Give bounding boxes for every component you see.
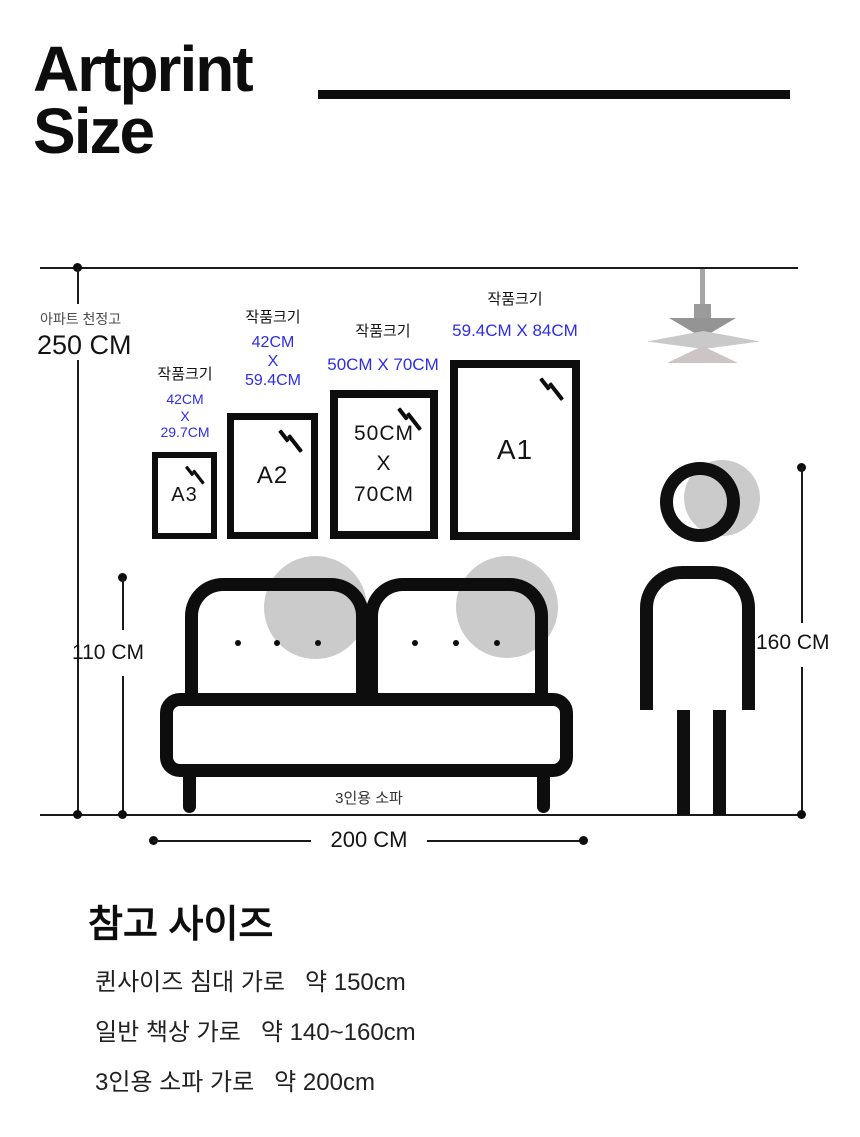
artwork-dimensions: 42CM X 59.4CM xyxy=(222,334,324,391)
frame-a1: A1 xyxy=(450,360,580,540)
sofa-leg xyxy=(537,771,550,813)
glass-glare-icon xyxy=(279,426,305,456)
ceiling-caption: 아파트 천정고 xyxy=(40,309,121,329)
artwork-dimensions: 42CM X 29.7CM xyxy=(140,391,230,441)
frame-caption-50x70: 작품크기 50CM X 70CM xyxy=(318,320,448,375)
dimension-text: 29.7CM xyxy=(140,424,230,441)
cushion-button xyxy=(274,640,280,646)
artwork-size-caption: 작품크기 xyxy=(140,363,230,384)
dimension-dot xyxy=(73,810,82,819)
reference-item: 3인용 소파 가로 약 200cm xyxy=(95,1062,375,1097)
reference-item: 일반 책상 가로 약 140~160cm xyxy=(95,1012,416,1047)
artprint-size-infographic: Artprint Size 아파트 천정고 250 CM 작품크기 42CM X… xyxy=(0,0,860,1137)
cushion-button xyxy=(235,640,241,646)
cushion-button xyxy=(453,640,459,646)
lamp-rod xyxy=(700,269,705,306)
ceiling-height-line xyxy=(77,360,79,815)
frame-size-line: 70CM xyxy=(354,480,414,510)
page-title: Artprint Size xyxy=(33,38,252,162)
person-height-value: 160 CM xyxy=(756,631,830,655)
sofa-leg xyxy=(183,771,196,813)
ceiling-height-line xyxy=(77,268,79,304)
cushion-button xyxy=(494,640,500,646)
glass-glare-icon xyxy=(186,463,207,487)
cushion-button xyxy=(315,640,321,646)
dimension-text: 42CM xyxy=(140,391,230,408)
dimension-dot xyxy=(579,836,588,845)
glass-glare-icon xyxy=(540,374,566,404)
person-head xyxy=(660,462,740,542)
dimension-text: X xyxy=(222,353,324,372)
glass-glare-icon xyxy=(398,404,424,434)
frame-size-label: A1 xyxy=(497,434,533,466)
dimension-text: 42CM xyxy=(222,334,324,353)
frame-caption-a3: 작품크기 42CM X 29.7CM xyxy=(140,363,230,441)
ceiling-line xyxy=(40,267,798,269)
sofa-width-value: 200 CM xyxy=(311,827,427,853)
person-torso xyxy=(640,566,755,710)
sofa-width-line xyxy=(427,840,583,842)
cushion-button xyxy=(412,640,418,646)
sofa-width-line xyxy=(153,840,311,842)
sofa-seat xyxy=(160,693,573,777)
sofa-label: 3인용 소파 xyxy=(295,787,443,808)
ceiling-height-value: 250 CM xyxy=(37,330,132,361)
artwork-size-caption: 작품크기 xyxy=(318,320,448,341)
artwork-size-caption: 작품크기 xyxy=(222,306,324,327)
lamp-shade-top xyxy=(669,318,736,333)
sofa-height-value: 110 CM xyxy=(72,641,144,665)
title-rule xyxy=(318,90,790,99)
artwork-dimensions: 50CM X 70CM xyxy=(318,355,448,375)
dimension-text: 59.4CM xyxy=(222,372,324,391)
sofa-height-line xyxy=(122,578,124,630)
person-height-line xyxy=(801,467,803,623)
reference-heading: 참고 사이즈 xyxy=(88,893,273,948)
frame-caption-a2: 작품크기 42CM X 59.4CM xyxy=(222,306,324,391)
frame-a2: A2 xyxy=(227,413,318,539)
frame-a3: A3 xyxy=(152,452,217,539)
lamp-neck xyxy=(694,304,711,319)
dimension-text: 50CM X 70CM xyxy=(318,355,448,375)
frame-50x70: 50CM X 70CM xyxy=(330,390,438,539)
person-leg xyxy=(677,710,690,815)
artwork-dimensions: 59.4CM X 84CM xyxy=(440,321,590,341)
dimension-text: 59.4CM X 84CM xyxy=(440,321,590,341)
frame-size-label: A3 xyxy=(171,484,197,507)
dimension-text: X xyxy=(140,408,230,425)
artwork-size-caption: 작품크기 xyxy=(440,288,590,309)
lamp-shade-middle xyxy=(647,331,760,349)
frame-size-label: A2 xyxy=(257,462,288,490)
person-leg xyxy=(713,710,726,815)
lamp-shade-bottom xyxy=(667,346,738,363)
reference-item: 퀸사이즈 침대 가로 약 150cm xyxy=(95,962,406,997)
frame-size-line: X xyxy=(354,449,414,479)
person-height-line xyxy=(801,667,803,815)
dimension-dot xyxy=(118,810,127,819)
dimension-dot xyxy=(797,810,806,819)
sofa-height-line xyxy=(122,676,124,815)
frame-caption-a1: 작품크기 59.4CM X 84CM xyxy=(440,288,590,341)
